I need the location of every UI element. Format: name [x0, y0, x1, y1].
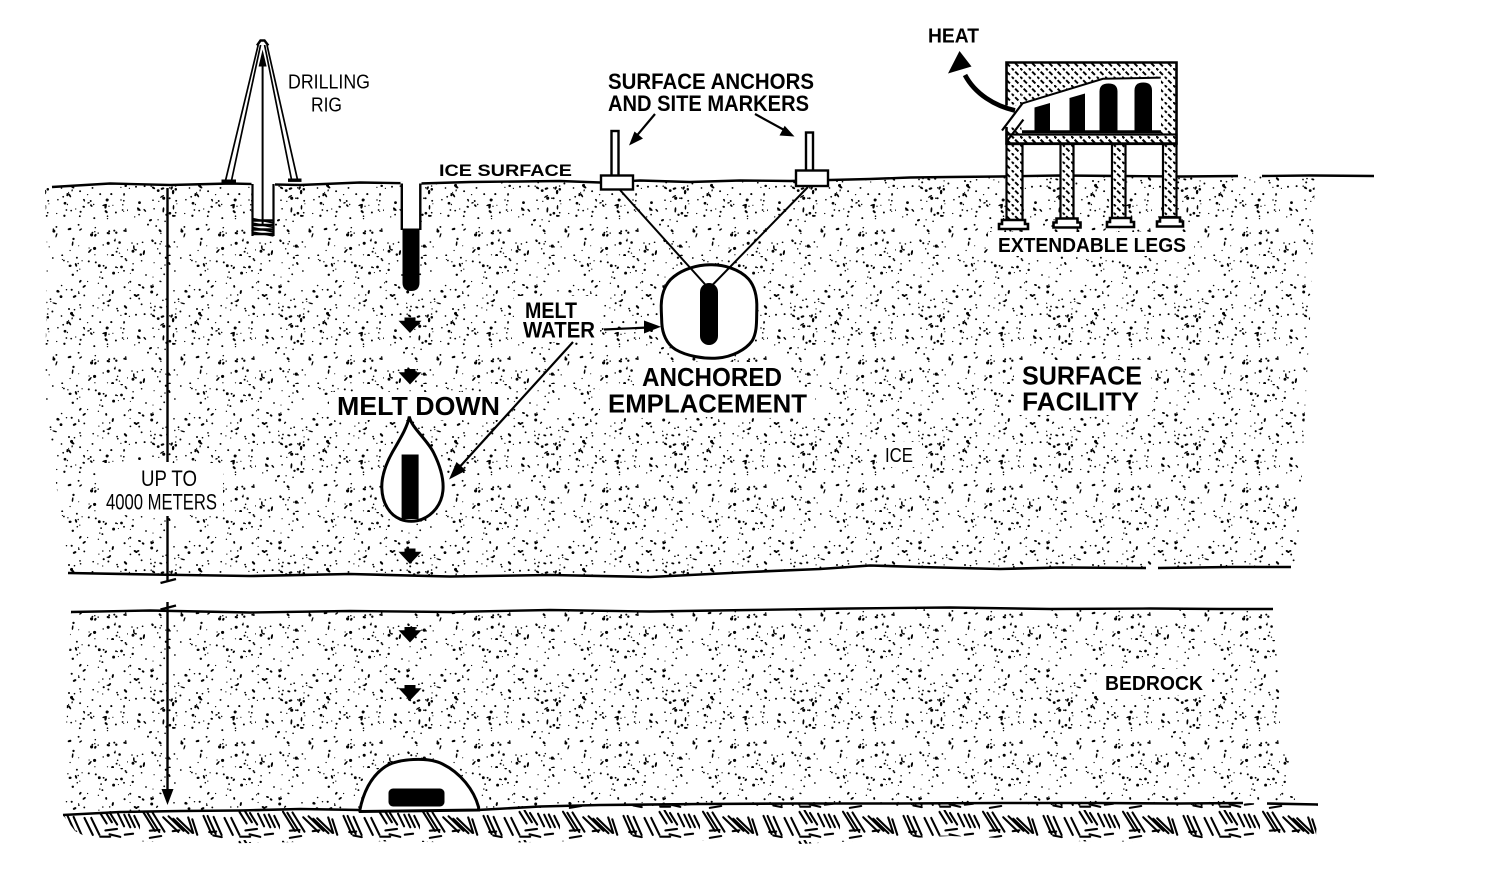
- svg-text:RIG: RIG: [311, 94, 342, 117]
- svg-text:AND SITE MARKERS: AND SITE MARKERS: [608, 91, 809, 116]
- svg-text:ICE SURFACE: ICE SURFACE: [439, 162, 572, 180]
- svg-text:ICE: ICE: [885, 444, 913, 467]
- svg-text:4000 METERS: 4000 METERS: [106, 490, 217, 515]
- svg-text:DRILLING: DRILLING: [288, 71, 370, 94]
- svg-text:MELT DOWN: MELT DOWN: [337, 391, 500, 421]
- svg-text:HEAT: HEAT: [928, 26, 979, 48]
- svg-text:ANCHORED: ANCHORED: [642, 362, 782, 392]
- svg-text:EXTENDABLE LEGS: EXTENDABLE LEGS: [998, 235, 1186, 257]
- svg-text:FACILITY: FACILITY: [1022, 387, 1139, 417]
- svg-text:EMPLACEMENT: EMPLACEMENT: [608, 389, 807, 419]
- svg-text:WATER: WATER: [523, 318, 595, 343]
- svg-text:UP TO: UP TO: [141, 466, 197, 491]
- svg-text:BEDROCK: BEDROCK: [1105, 672, 1203, 695]
